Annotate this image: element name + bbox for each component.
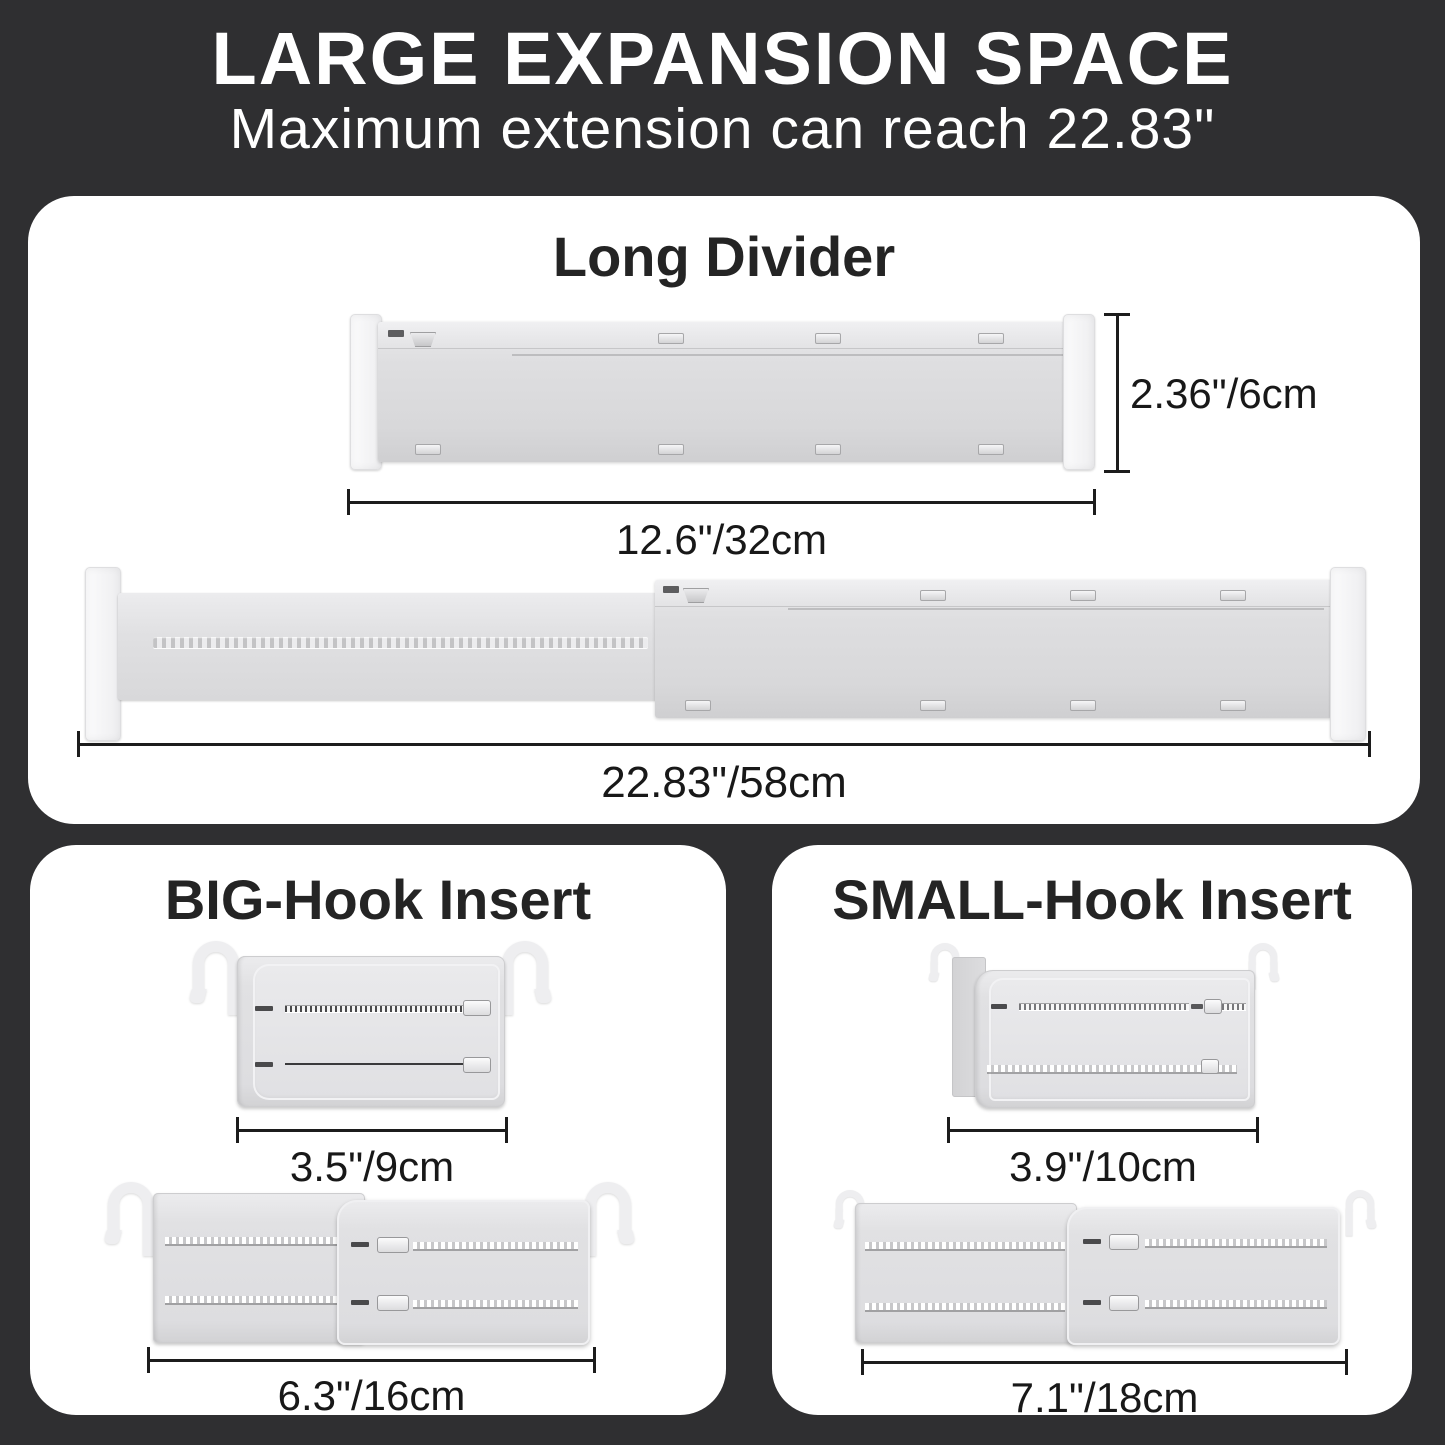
dim-tick xyxy=(77,731,80,757)
small-insert-extended-right-panel xyxy=(1067,1207,1340,1345)
long-divider-panel: Long Divider 2.36"/6cm xyxy=(28,196,1420,824)
tab xyxy=(978,444,1004,455)
page-subtitle: Maximum extension can reach 22.83" xyxy=(0,100,1445,160)
small-collapsed-dimension-label: 3.9"/10cm xyxy=(948,1145,1258,1189)
lock-clip-icon xyxy=(663,586,679,593)
tab xyxy=(415,444,441,455)
slider-handle xyxy=(1201,1059,1219,1074)
slider-handle xyxy=(377,1237,409,1253)
small-insert-collapsed-body xyxy=(975,970,1255,1108)
dim-bar xyxy=(348,501,1095,504)
serrated-rail xyxy=(1019,1003,1189,1011)
bead-rail xyxy=(413,1300,578,1307)
hook-tip xyxy=(1366,1220,1377,1229)
hook-tip xyxy=(188,989,206,1003)
rail-dash xyxy=(351,1242,369,1247)
hook-arc xyxy=(585,1182,631,1216)
extended-divider-outer-body xyxy=(655,580,1332,718)
bead-rail xyxy=(413,1242,578,1249)
dim-tick xyxy=(505,1117,508,1143)
tab xyxy=(978,333,1004,344)
big-hook-icon xyxy=(585,1182,631,1256)
slider-handle xyxy=(463,1057,491,1073)
insert-front-face xyxy=(989,978,1250,1101)
dim-bar xyxy=(148,1359,595,1362)
tab xyxy=(920,590,946,601)
big-collapsed-dimension-label: 3.5"/9cm xyxy=(222,1145,522,1189)
rail-dash xyxy=(1083,1300,1101,1305)
big-hook-icon xyxy=(193,941,239,1015)
big-insert-collapsed-body xyxy=(237,956,505,1107)
extended-divider-inner-bar xyxy=(118,593,658,700)
dim-tick xyxy=(1104,470,1130,473)
divider-end-cap-right xyxy=(1063,314,1095,470)
hook-tip xyxy=(617,1230,635,1244)
tab xyxy=(815,444,841,455)
extended-divider-end-cap-left xyxy=(85,567,121,741)
long-divider-title: Long Divider xyxy=(28,228,1420,287)
dim-bar xyxy=(862,1361,1347,1364)
hook-arc xyxy=(108,1182,154,1216)
tab xyxy=(1070,590,1096,601)
bead-rail xyxy=(865,1242,1065,1249)
small-hook-panel: SMALL-Hook Insert 3.9"/10cm xyxy=(772,845,1412,1415)
tab xyxy=(685,700,711,711)
bead-rail xyxy=(865,1303,1065,1310)
tab xyxy=(658,333,684,344)
rail-dash xyxy=(351,1300,369,1305)
tab xyxy=(815,333,841,344)
dim-tick xyxy=(236,1117,239,1143)
tab xyxy=(920,700,946,711)
hook-tip xyxy=(534,989,552,1003)
dim-tick xyxy=(947,1117,950,1143)
hook-arc xyxy=(193,941,239,975)
big-hook-panel: BIG-Hook Insert 3.5"/9cm xyxy=(30,845,726,1415)
small-extended-dimension-label: 7.1"/18cm xyxy=(862,1376,1347,1420)
divider-top-band xyxy=(378,322,1065,349)
serrated-rail xyxy=(285,1005,485,1013)
slider-handle xyxy=(463,1000,491,1016)
hook-leg xyxy=(1346,1209,1353,1236)
hook-arc xyxy=(502,941,548,975)
big-hook-icon xyxy=(108,1182,154,1256)
dim-tick xyxy=(1345,1349,1348,1375)
hook-tip xyxy=(103,1230,121,1244)
divider-collapsed-body xyxy=(378,322,1065,462)
extended-divider-end-cap-right xyxy=(1330,567,1366,741)
height-dimension-label: 2.36"/6cm xyxy=(1130,372,1430,416)
small-insert-extended-left-panel xyxy=(855,1203,1077,1343)
dim-tick xyxy=(147,1347,150,1373)
big-insert-extended-right-panel xyxy=(337,1200,590,1345)
dim-tick xyxy=(861,1349,864,1375)
ratchet-teeth xyxy=(153,637,648,648)
rail-dark-segment xyxy=(1191,1004,1203,1009)
dim-bar xyxy=(1116,314,1119,472)
bead-rail xyxy=(1145,1239,1327,1246)
extended-length-dimension-label: 22.83"/58cm xyxy=(78,760,1370,806)
tab xyxy=(1070,700,1096,711)
slider-handle xyxy=(377,1295,409,1311)
dim-tick xyxy=(1368,731,1371,757)
dim-tick xyxy=(1093,489,1096,515)
bead-rail xyxy=(165,1237,353,1244)
hook-tip xyxy=(1269,973,1280,982)
lock-clip-icon xyxy=(388,330,404,337)
rail-dash xyxy=(255,1006,273,1011)
page-title: LARGE EXPANSION SPACE xyxy=(0,20,1445,98)
big-insert-extended-left-panel xyxy=(153,1193,365,1343)
dim-tick xyxy=(593,1347,596,1373)
hook-tip xyxy=(928,973,939,982)
collapsed-length-dimension-label: 12.6"/32cm xyxy=(348,518,1095,562)
tab xyxy=(1220,590,1246,601)
tab xyxy=(658,444,684,455)
dim-tick xyxy=(1256,1117,1259,1143)
slider-handle xyxy=(1109,1295,1139,1311)
bead-rail xyxy=(165,1296,353,1303)
dim-tick xyxy=(1104,313,1130,316)
divider-seam-line xyxy=(788,608,1324,610)
rail-dash xyxy=(991,1004,1007,1009)
small-hook-title: SMALL-Hook Insert xyxy=(772,871,1412,930)
slider-handle xyxy=(1204,999,1222,1014)
dim-bar xyxy=(237,1129,507,1132)
dim-bar xyxy=(78,743,1370,746)
dim-tick xyxy=(347,489,350,515)
dim-bar xyxy=(948,1129,1258,1132)
insert-front-face xyxy=(253,964,500,1100)
bead-rail xyxy=(987,1065,1237,1072)
divider-seam-line xyxy=(512,354,1065,356)
wire-rail xyxy=(285,1063,485,1065)
rail-dash xyxy=(1083,1239,1101,1244)
small-hook-icon xyxy=(1346,1190,1375,1236)
product-infographic: LARGE EXPANSION SPACE Maximum extension … xyxy=(0,0,1445,1445)
slider-handle xyxy=(1109,1234,1139,1250)
tab xyxy=(1220,700,1246,711)
big-hook-title: BIG-Hook Insert xyxy=(30,871,726,930)
rail-dash xyxy=(255,1062,273,1067)
hook-tip xyxy=(833,1220,844,1229)
big-hook-icon xyxy=(502,941,548,1015)
serrated-rail xyxy=(1222,1003,1246,1011)
big-extended-dimension-label: 6.3"/16cm xyxy=(148,1374,595,1418)
bead-rail xyxy=(1145,1300,1327,1307)
